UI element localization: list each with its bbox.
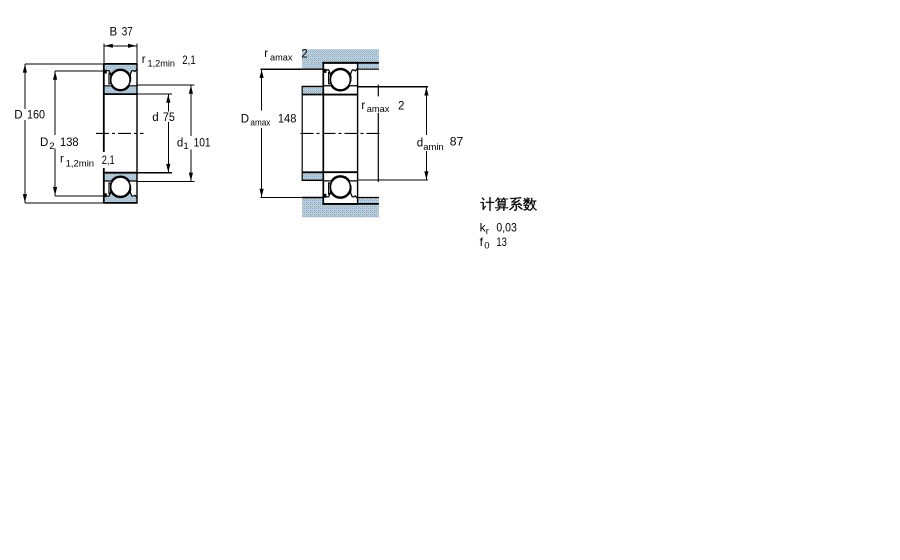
svg-text:d: d bbox=[177, 137, 183, 149]
svg-text:160: 160 bbox=[27, 109, 45, 121]
svg-text:r: r bbox=[361, 100, 365, 112]
svg-text:amax: amax bbox=[367, 104, 390, 115]
svg-text:r: r bbox=[264, 48, 268, 60]
svg-text:37: 37 bbox=[122, 26, 133, 38]
svg-text:2: 2 bbox=[301, 48, 307, 60]
svg-text:amax: amax bbox=[250, 118, 270, 129]
svg-text:0: 0 bbox=[484, 240, 489, 251]
svg-text:1,2min: 1,2min bbox=[66, 159, 95, 170]
svg-text:75: 75 bbox=[163, 112, 175, 124]
svg-text:B: B bbox=[110, 26, 118, 38]
svg-text:13: 13 bbox=[496, 235, 507, 249]
svg-text:2: 2 bbox=[398, 101, 404, 113]
svg-text:D: D bbox=[14, 109, 22, 121]
svg-text:r: r bbox=[486, 226, 489, 237]
svg-text:87: 87 bbox=[450, 136, 464, 148]
svg-text:D: D bbox=[241, 114, 249, 126]
svg-text:148: 148 bbox=[278, 113, 297, 125]
svg-text:amin: amin bbox=[423, 142, 444, 153]
svg-text:amax: amax bbox=[270, 52, 293, 63]
svg-text:138: 138 bbox=[60, 137, 79, 149]
svg-text:r: r bbox=[142, 54, 146, 66]
svg-text:r: r bbox=[60, 153, 64, 165]
svg-text:d: d bbox=[152, 112, 158, 124]
svg-text:1,2min: 1,2min bbox=[148, 59, 176, 70]
svg-text:101: 101 bbox=[194, 137, 211, 149]
svg-text:0,03: 0,03 bbox=[496, 220, 517, 234]
svg-text:D: D bbox=[40, 137, 48, 149]
svg-text:2: 2 bbox=[49, 141, 54, 152]
svg-text:1: 1 bbox=[183, 141, 188, 152]
svg-text:2,1: 2,1 bbox=[102, 155, 115, 167]
svg-text:2,1: 2,1 bbox=[182, 55, 195, 67]
